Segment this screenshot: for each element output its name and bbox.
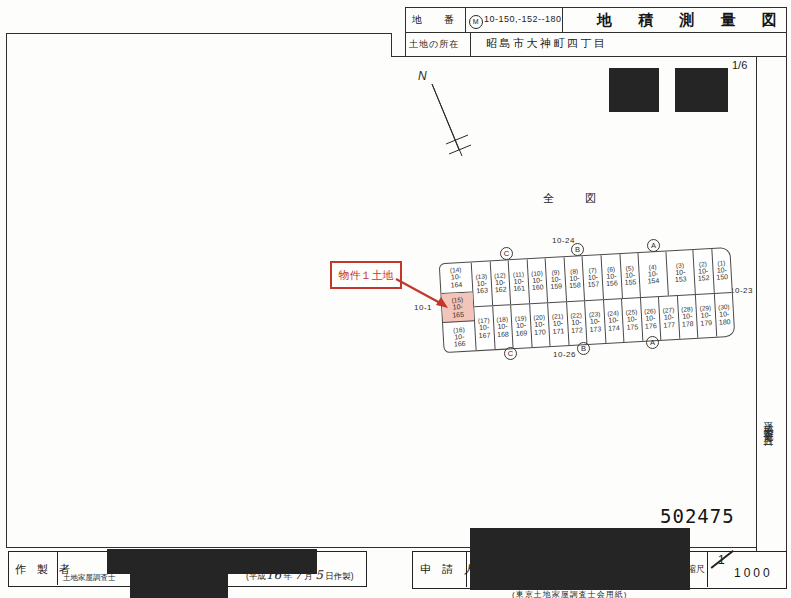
header-divider-3 bbox=[470, 32, 471, 56]
creation-date-day-suffix: 日作製) bbox=[323, 571, 354, 581]
north-label: N bbox=[418, 69, 427, 83]
parcel-lot-number: 178 bbox=[682, 320, 694, 328]
map-top-border bbox=[6, 33, 392, 34]
document-number-stamp: 502475 bbox=[660, 505, 735, 527]
lot-number-label: 地 番 bbox=[412, 13, 460, 27]
vertical-date-stamp: 平成拾六年七月五日 bbox=[761, 413, 775, 545]
parcel-lot-number: 176 bbox=[645, 322, 657, 330]
parcel-cell: (5)10-155 bbox=[620, 253, 641, 297]
parcel-lot-number: 175 bbox=[626, 323, 638, 331]
header-bottom-border bbox=[391, 56, 786, 57]
scale-denominator: 1000 bbox=[734, 566, 773, 580]
parcel-lot-number: 173 bbox=[589, 325, 601, 333]
parcel-cell: (30)10-180 bbox=[714, 292, 734, 336]
parcel-cell: (26)10-176 bbox=[640, 296, 661, 340]
parcel-lot-number: 159 bbox=[550, 283, 562, 291]
point-marker-top-a: A bbox=[647, 239, 660, 252]
scale-box-divider-2 bbox=[707, 551, 708, 587]
parcel-cell: (29)10-179 bbox=[696, 293, 717, 337]
map-right-border bbox=[756, 56, 757, 552]
header-left-border bbox=[405, 7, 406, 56]
parcel-lot-number: 163 bbox=[476, 287, 488, 295]
parcel-lot-number: 177 bbox=[663, 321, 675, 329]
header-divider-1 bbox=[465, 7, 466, 32]
redacted-applicant-name bbox=[470, 528, 690, 590]
map-left-border bbox=[6, 33, 7, 547]
map-top-step-border bbox=[391, 33, 392, 56]
parcel-cell: (24)10-174 bbox=[604, 299, 625, 343]
parcel-cell: (13)10-163 bbox=[472, 261, 493, 305]
parcel-lot-number: 155 bbox=[624, 278, 636, 286]
parcel-cell: (4)10-154 bbox=[639, 252, 669, 297]
redacted-creator-name bbox=[107, 549, 317, 574]
point-marker-top-c: C bbox=[500, 247, 513, 260]
parcel-lot-number: 167 bbox=[479, 331, 491, 339]
parcel-lot-number: 169 bbox=[515, 329, 527, 337]
parcel-lot-number: 174 bbox=[608, 324, 620, 332]
parcel-lot-number: 156 bbox=[606, 280, 618, 288]
parcel-cell: (2)10-152 bbox=[693, 249, 714, 293]
point-marker-bottom-a: A bbox=[646, 336, 659, 349]
location-label: 土地の所在 bbox=[409, 38, 459, 51]
parcel-lot-number: 166 bbox=[454, 340, 466, 348]
redacted-block-top-1 bbox=[609, 68, 659, 112]
parcel-cell: (16)10-166 bbox=[443, 322, 476, 352]
parcel-lot-number: 161 bbox=[513, 285, 525, 293]
north-arrow: N bbox=[402, 60, 482, 165]
overview-label: 全 図 bbox=[543, 191, 606, 206]
parcel-cell: (20)10-170 bbox=[530, 303, 551, 347]
parcel-lot-number: 179 bbox=[700, 319, 712, 327]
parcel-cell: (17)10-167 bbox=[474, 306, 495, 350]
parcel-lot-number: 158 bbox=[569, 282, 581, 290]
parcel-cell: (27)10-177 bbox=[659, 295, 680, 339]
creator-title: 土地家屋調査士 bbox=[63, 573, 116, 583]
parcel-cell: (12)10-162 bbox=[490, 260, 511, 304]
point-marker-bottom-b: B bbox=[577, 342, 590, 355]
parcel-cell: (23)10-173 bbox=[585, 300, 606, 344]
parcel-lot-number: 168 bbox=[497, 330, 509, 338]
parcel-cell: (9)10-159 bbox=[546, 257, 567, 301]
road-label-bottom: 10-26 bbox=[553, 350, 576, 359]
parcel-grid: (14)10-164(15)10-165(16)10-166 (13)10-16… bbox=[439, 247, 736, 353]
lot-number-value: M10-150,-152--180 bbox=[469, 14, 562, 29]
parcel-cell: (3)10-153 bbox=[666, 250, 696, 295]
header-divider-2 bbox=[562, 7, 563, 32]
grid-main: (13)10-163(12)10-162(11)10-161(10)10-160… bbox=[472, 248, 735, 350]
location-value: 昭島市大神町四丁目 bbox=[486, 36, 608, 51]
parcel-cell: (1)10-150 bbox=[712, 248, 732, 292]
parcel-lot-number: 180 bbox=[719, 318, 731, 326]
point-marker-bottom-c: C bbox=[504, 347, 517, 360]
parcel-lot-number: 170 bbox=[534, 328, 546, 336]
parcel-lot-number: 150 bbox=[716, 273, 728, 281]
stamp-mark: M bbox=[469, 15, 483, 29]
road-label-right: 10-23 bbox=[730, 286, 753, 295]
parcel-cell: (22)10-172 bbox=[567, 301, 588, 345]
parcel-lot-number: 172 bbox=[571, 326, 583, 334]
parcel-cell: (19)10-169 bbox=[511, 304, 532, 348]
parcel-lot-number: 162 bbox=[495, 286, 507, 294]
point-marker-top-b: B bbox=[571, 243, 584, 256]
parcel-lot-number: 171 bbox=[552, 327, 564, 335]
parcel-cell: (25)10-175 bbox=[622, 298, 643, 342]
parcel-lot-number: 154 bbox=[647, 277, 659, 285]
parcel-lot-number: 152 bbox=[698, 274, 710, 282]
parcel-cell: (8)10-158 bbox=[564, 256, 585, 300]
subject-property-label: 物件１土地 bbox=[330, 261, 402, 289]
lot-number-text: 10-150,-152--180 bbox=[484, 14, 562, 24]
parcel-cell: (6)10-156 bbox=[602, 254, 623, 298]
redacted-creator-seal bbox=[130, 573, 228, 598]
header-top-border bbox=[405, 7, 786, 8]
parcel-lot-number: 153 bbox=[675, 276, 687, 284]
sheet-right-border bbox=[786, 7, 787, 588]
parcel-cell: (10)10-160 bbox=[527, 258, 548, 302]
road-label-top: 10-24 bbox=[552, 236, 575, 245]
parcel-lot-number: 157 bbox=[587, 281, 599, 289]
sheet-number: 1/6 bbox=[732, 59, 747, 71]
paper-note: (東京土地家屋調査士会用紙) bbox=[512, 589, 627, 598]
survey-map-sheet: 地 番 M10-150,-152--180 地 積 測 量 図 土地の所在 昭島… bbox=[0, 0, 791, 598]
parcel-cell: (7)10-157 bbox=[583, 255, 604, 299]
header-mid-border bbox=[405, 32, 786, 33]
parcel-cell: (28)10-178 bbox=[677, 294, 698, 338]
parcel-cell: (18)10-168 bbox=[493, 305, 514, 349]
document-title: 地 積 測 量 図 bbox=[597, 11, 788, 30]
parcel-cell: (21)10-171 bbox=[548, 302, 569, 346]
parcel-lot-number: 160 bbox=[532, 284, 544, 292]
redacted-block-top-2 bbox=[675, 68, 728, 112]
parcel-cell: (11)10-161 bbox=[509, 259, 530, 303]
subject-pointer-arrow bbox=[394, 276, 454, 314]
